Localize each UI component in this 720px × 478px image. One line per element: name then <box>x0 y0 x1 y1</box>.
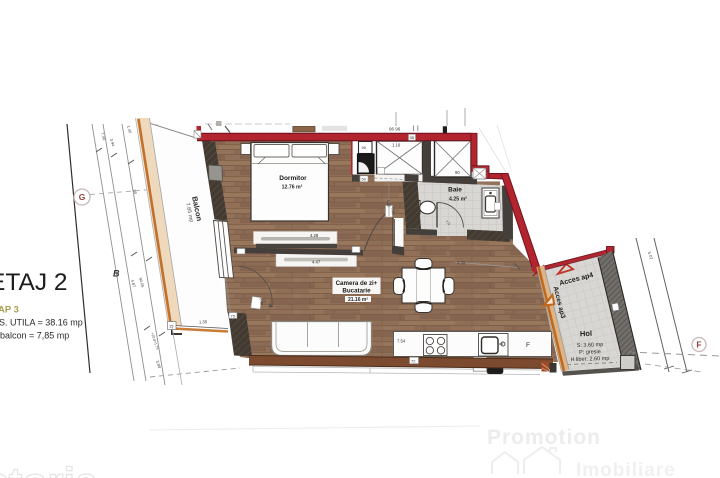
svg-text:Dormitor: Dormitor <box>279 175 307 182</box>
svg-text:Bucatarie: Bucatarie <box>342 288 371 295</box>
svg-text:96 96: 96 96 <box>389 127 401 132</box>
svg-text:1.55: 1.55 <box>386 200 391 208</box>
svg-text:0.90: 0.90 <box>391 207 395 214</box>
svg-text:1.35: 1.35 <box>199 319 208 324</box>
svg-text:12.76 m²: 12.76 m² <box>282 185 303 191</box>
svg-text:AP 3: AP 3 <box>0 305 19 316</box>
svg-text:F: F <box>526 342 530 349</box>
svg-text:90: 90 <box>455 170 460 175</box>
svg-text:balcon = 7,85 mp: balcon = 7,85 mp <box>0 331 69 341</box>
svg-text:S. UTILA = 38.16 mp: S. UTILA = 38.16 mp <box>0 318 83 328</box>
svg-text:35: 35 <box>410 135 415 140</box>
svg-text:P: gresie: P: gresie <box>579 349 601 356</box>
svg-text:2.70: 2.70 <box>457 260 466 266</box>
svg-text:7.54: 7.54 <box>397 339 406 344</box>
svg-text:1.16: 1.16 <box>392 143 401 148</box>
svg-text:S: 3.60 mp: S: 3.60 mp <box>577 342 604 349</box>
svg-text:4.28: 4.28 <box>310 233 319 238</box>
svg-text:75: 75 <box>231 313 236 318</box>
svg-text:F: F <box>696 340 701 350</box>
svg-text:72: 72 <box>411 358 416 363</box>
svg-text:G: G <box>79 192 86 202</box>
svg-text:Promotion: Promotion <box>487 426 601 449</box>
svg-text:Imobiliare: Imobiliare <box>576 460 676 478</box>
svg-text:21.16 m²: 21.16 m² <box>348 297 368 303</box>
svg-text:Hol: Hol <box>580 329 592 338</box>
svg-text:15: 15 <box>169 324 174 329</box>
svg-text:storia: storia <box>0 459 99 478</box>
svg-text:4.47: 4.47 <box>312 260 321 265</box>
svg-text:ETAJ 2: ETAJ 2 <box>0 269 68 296</box>
svg-text:50: 50 <box>362 177 367 182</box>
svg-text:B: B <box>113 269 120 279</box>
svg-text:Camera de zi+: Camera de zi+ <box>336 280 378 287</box>
svg-text:4.25 m²: 4.25 m² <box>449 197 467 203</box>
svg-text:90: 90 <box>362 145 367 150</box>
svg-text:Baie: Baie <box>448 187 462 194</box>
